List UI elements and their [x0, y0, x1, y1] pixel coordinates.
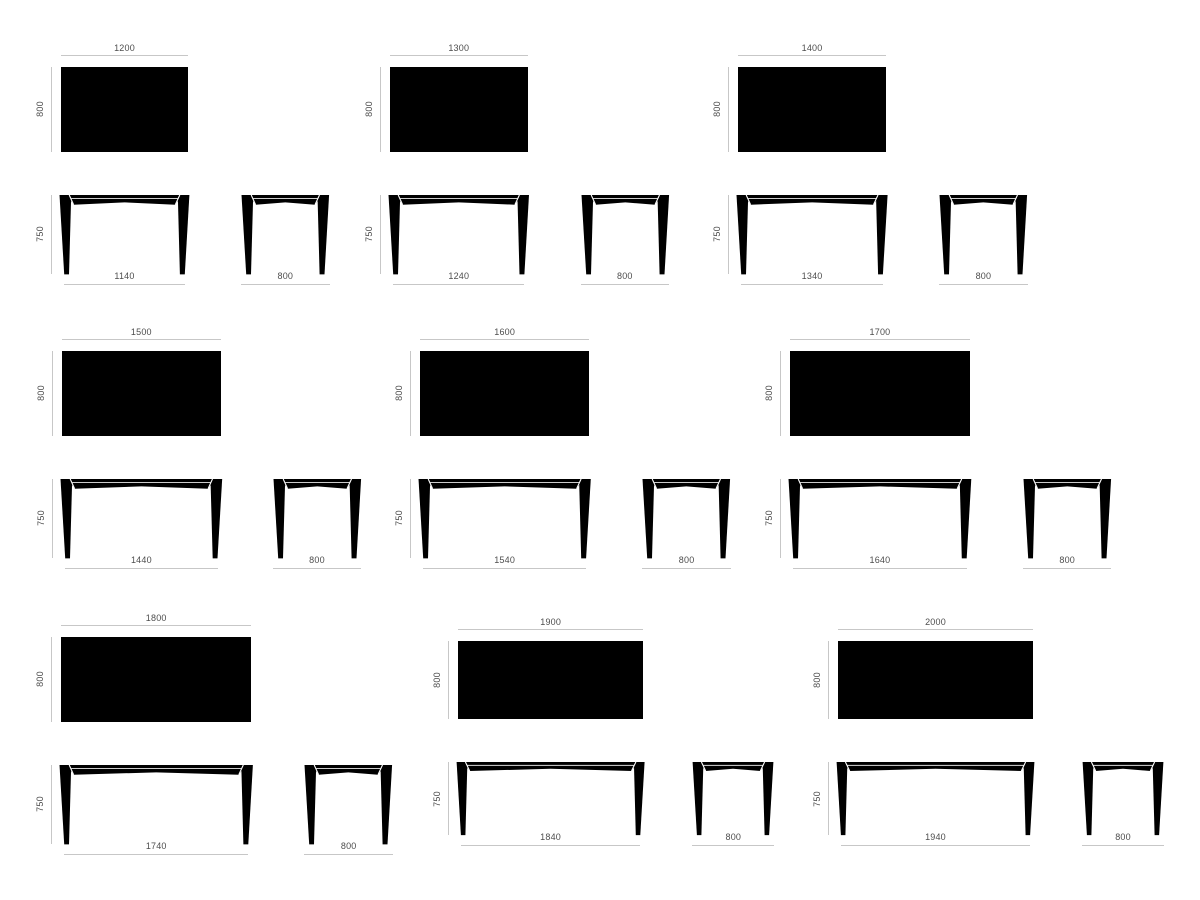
right-leg [1024, 762, 1035, 835]
table-front-view [59, 765, 253, 844]
table-front-view [836, 762, 1035, 835]
top-width-dimension-line [420, 339, 589, 340]
top-width-dimension-line [390, 55, 528, 56]
top-depth-dimension-line [52, 351, 53, 436]
table-side-view-box [273, 479, 362, 558]
side-width-dimension-line [304, 854, 393, 855]
height-dimension-label-box: 750 [32, 195, 48, 274]
table-top-view [420, 351, 589, 436]
top-depth-dimension-label-box: 800 [32, 67, 48, 152]
height-dimension-label: 750 [36, 510, 46, 526]
dimension-drawing-canvas: 1200 800 750 1140 [0, 0, 1200, 900]
tabletop-edge [790, 479, 970, 482]
height-dimension-label: 750 [432, 791, 442, 807]
height-dimension-label-box: 750 [809, 762, 825, 835]
right-leg [657, 195, 669, 274]
table-side-view [273, 479, 362, 558]
left-leg [61, 479, 73, 558]
table-side-view-box [939, 195, 1028, 274]
top-width-dimension-label: 1200 [61, 43, 188, 54]
top-depth-dimension-line [448, 641, 449, 719]
table-front-view-box [59, 765, 253, 844]
side-width-dimension-label: 800 [692, 832, 774, 843]
table-side-view-box [241, 195, 330, 274]
left-leg [60, 765, 72, 844]
apron [466, 766, 636, 771]
table-top-view [790, 351, 970, 436]
height-dimension-line [51, 195, 52, 274]
left-leg [242, 195, 254, 274]
top-width-dimension-line [458, 629, 643, 630]
tabletop-edge [62, 479, 221, 482]
left-leg [60, 195, 72, 274]
height-dimension-label-box: 750 [361, 195, 377, 274]
table-top-view [838, 641, 1033, 719]
table-side-view [581, 195, 670, 274]
top-width-dimension-line [62, 339, 221, 340]
apron [429, 483, 581, 489]
height-dimension-line [52, 479, 53, 558]
top-depth-dimension-label-box: 800 [761, 351, 777, 436]
side-width-dimension-label: 800 [1023, 555, 1112, 566]
top-depth-dimension-label: 800 [394, 385, 404, 401]
left-leg [1023, 479, 1035, 558]
left-leg [789, 479, 801, 558]
table-top-view [390, 67, 528, 152]
top-width-dimension-label: 1700 [790, 327, 970, 338]
apron [70, 769, 243, 775]
tabletop-edge [306, 765, 391, 768]
left-leg [737, 195, 749, 274]
table-side-view [692, 762, 774, 835]
top-depth-dimension-label-box: 800 [32, 637, 48, 722]
top-depth-dimension-label-box: 800 [361, 67, 377, 152]
side-width-dimension-label: 800 [581, 271, 670, 282]
table-top-view [61, 67, 188, 152]
front-width-dimension-label: 1940 [841, 832, 1030, 843]
front-width-dimension-line [393, 284, 524, 285]
top-width-dimension-label: 1900 [458, 617, 643, 628]
table-front-view [736, 195, 888, 274]
top-depth-dimension-label-box: 800 [709, 67, 725, 152]
table-front-view [59, 195, 190, 274]
left-leg [457, 762, 468, 835]
left-leg [581, 195, 593, 274]
right-leg [579, 479, 591, 558]
apron [1092, 766, 1155, 771]
apron [799, 483, 962, 489]
height-dimension-label-box: 750 [761, 479, 777, 558]
top-depth-dimension-line [410, 351, 411, 436]
top-depth-dimension-label: 800 [364, 101, 374, 117]
side-width-dimension-label: 800 [642, 555, 731, 566]
top-depth-dimension-line [780, 351, 781, 436]
side-width-dimension-line [241, 284, 330, 285]
apron [950, 199, 1017, 205]
table-side-view [1082, 762, 1164, 835]
table-front-view [60, 479, 223, 558]
right-leg [960, 479, 972, 558]
table-front-view-box [836, 762, 1035, 835]
side-width-dimension-line [692, 845, 774, 846]
table-side-view-box [642, 479, 731, 558]
table-side-view [939, 195, 1028, 274]
left-leg [389, 195, 401, 274]
left-leg [693, 762, 704, 835]
top-depth-dimension-label: 800 [35, 671, 45, 687]
height-dimension-label: 750 [712, 226, 722, 242]
table-front-view [388, 195, 530, 274]
top-width-dimension-label: 1400 [738, 43, 886, 54]
front-width-dimension-line [793, 568, 967, 569]
right-leg [1153, 762, 1164, 835]
side-width-dimension-label: 800 [304, 841, 393, 852]
front-width-dimension-label: 1440 [65, 555, 217, 566]
top-depth-dimension-line [51, 67, 52, 152]
left-leg [419, 479, 431, 558]
top-width-dimension-label: 1600 [420, 327, 589, 338]
front-width-dimension-line [841, 845, 1030, 846]
apron [702, 766, 765, 771]
top-depth-dimension-line [828, 641, 829, 719]
apron [1033, 483, 1100, 489]
height-dimension-label-box: 750 [709, 195, 725, 274]
top-width-dimension-line [61, 55, 188, 56]
table-front-view [456, 762, 645, 835]
side-width-dimension-line [1023, 568, 1112, 569]
apron [846, 766, 1026, 771]
height-dimension-line [728, 195, 729, 274]
top-width-dimension-line [838, 629, 1033, 630]
apron [283, 483, 350, 489]
apron [252, 199, 319, 205]
top-depth-dimension-label-box: 800 [391, 351, 407, 436]
front-width-dimension-line [423, 568, 586, 569]
side-width-dimension-line [581, 284, 670, 285]
height-dimension-label-box: 750 [32, 765, 48, 844]
top-depth-dimension-label-box: 800 [33, 351, 49, 436]
tabletop-edge [738, 195, 886, 198]
tabletop-edge [458, 762, 643, 765]
apron [653, 483, 720, 489]
top-depth-dimension-label-box: 800 [809, 641, 825, 719]
side-width-dimension-label: 800 [1082, 832, 1164, 843]
table-side-view-box [1082, 762, 1164, 835]
top-depth-dimension-line [728, 67, 729, 152]
apron [315, 769, 382, 775]
tabletop-edge [61, 765, 251, 768]
right-leg [1099, 479, 1111, 558]
top-width-dimension-label: 1500 [62, 327, 221, 338]
top-depth-dimension-label-box: 800 [429, 641, 445, 719]
table-side-view [642, 479, 731, 558]
left-leg [305, 765, 317, 844]
tabletop-edge [941, 195, 1026, 198]
height-dimension-label-box: 750 [429, 762, 445, 835]
left-leg [273, 479, 285, 558]
right-leg [317, 195, 329, 274]
height-dimension-line [780, 479, 781, 558]
tabletop-edge [390, 195, 527, 198]
right-leg [517, 195, 529, 274]
table-top-view [738, 67, 886, 152]
right-leg [719, 479, 731, 558]
tabletop-edge [694, 762, 772, 765]
right-leg [381, 765, 393, 844]
tabletop-edge [644, 479, 729, 482]
top-depth-dimension-label: 800 [712, 101, 722, 117]
top-width-dimension-label: 1300 [390, 43, 528, 54]
side-width-dimension-line [939, 284, 1028, 285]
height-dimension-line [51, 765, 52, 844]
table-top-view [61, 637, 251, 722]
apron [591, 199, 658, 205]
side-width-dimension-line [642, 568, 731, 569]
front-width-dimension-label: 1240 [393, 271, 524, 282]
side-width-dimension-line [273, 568, 362, 569]
tabletop-edge [838, 762, 1033, 765]
side-width-dimension-line [1082, 845, 1164, 846]
front-width-dimension-line [64, 854, 248, 855]
tabletop-edge [275, 479, 360, 482]
front-width-dimension-label: 1140 [64, 271, 185, 282]
height-dimension-label: 750 [394, 510, 404, 526]
table-side-view [304, 765, 393, 844]
right-leg [349, 479, 361, 558]
front-width-dimension-line [64, 284, 185, 285]
table-side-view-box [692, 762, 774, 835]
height-dimension-label: 750 [35, 796, 45, 812]
top-width-dimension-line [61, 625, 251, 626]
table-front-view-box [418, 479, 591, 558]
tabletop-edge [1025, 479, 1110, 482]
right-leg [763, 762, 774, 835]
right-leg [634, 762, 645, 835]
height-dimension-label: 750 [812, 791, 822, 807]
left-leg [837, 762, 848, 835]
front-width-dimension-line [461, 845, 640, 846]
side-width-dimension-label: 800 [939, 271, 1028, 282]
height-dimension-label: 750 [764, 510, 774, 526]
table-side-view-box [304, 765, 393, 844]
table-side-view-box [581, 195, 670, 274]
right-leg [178, 195, 190, 274]
table-front-view [418, 479, 591, 558]
table-top-view [458, 641, 643, 719]
table-front-view [788, 479, 972, 558]
top-depth-dimension-line [51, 637, 52, 722]
top-depth-dimension-label: 800 [36, 385, 46, 401]
table-front-view-box [736, 195, 888, 274]
right-leg [876, 195, 888, 274]
top-width-dimension-line [738, 55, 886, 56]
left-leg [1083, 762, 1094, 835]
table-front-view-box [456, 762, 645, 835]
front-width-dimension-label: 1540 [423, 555, 586, 566]
height-dimension-label-box: 750 [33, 479, 49, 558]
front-width-dimension-line [741, 284, 883, 285]
table-front-view-box [59, 195, 190, 274]
apron [70, 199, 180, 205]
left-leg [940, 195, 952, 274]
front-width-dimension-label: 1740 [64, 841, 248, 852]
apron [399, 199, 519, 205]
tabletop-edge [61, 195, 188, 198]
front-width-dimension-label: 1640 [793, 555, 967, 566]
top-depth-dimension-line [380, 67, 381, 152]
front-width-dimension-label: 1840 [461, 832, 640, 843]
tabletop-edge [1084, 762, 1162, 765]
height-dimension-line [380, 195, 381, 274]
top-depth-dimension-label: 800 [764, 385, 774, 401]
top-depth-dimension-label: 800 [812, 672, 822, 688]
side-width-dimension-label: 800 [241, 271, 330, 282]
right-leg [241, 765, 253, 844]
right-leg [210, 479, 222, 558]
table-side-view [241, 195, 330, 274]
table-front-view-box [60, 479, 223, 558]
top-width-dimension-label: 1800 [61, 613, 251, 624]
front-width-dimension-line [65, 568, 217, 569]
tabletop-edge [583, 195, 668, 198]
tabletop-edge [420, 479, 589, 482]
apron [71, 483, 212, 489]
top-width-dimension-label: 2000 [838, 617, 1033, 628]
table-front-view-box [388, 195, 530, 274]
table-top-view [62, 351, 221, 436]
top-depth-dimension-label: 800 [35, 101, 45, 117]
right-leg [1016, 195, 1028, 274]
tabletop-edge [243, 195, 328, 198]
top-depth-dimension-label: 800 [432, 672, 442, 688]
height-dimension-label: 750 [364, 226, 374, 242]
table-side-view [1023, 479, 1112, 558]
side-width-dimension-label: 800 [273, 555, 362, 566]
apron [747, 199, 878, 205]
table-side-view-box [1023, 479, 1112, 558]
height-dimension-line [410, 479, 411, 558]
height-dimension-label-box: 750 [391, 479, 407, 558]
height-dimension-line [828, 762, 829, 835]
height-dimension-label: 750 [35, 226, 45, 242]
front-width-dimension-label: 1340 [741, 271, 883, 282]
table-front-view-box [788, 479, 972, 558]
top-width-dimension-line [790, 339, 970, 340]
left-leg [643, 479, 655, 558]
height-dimension-line [448, 762, 449, 835]
